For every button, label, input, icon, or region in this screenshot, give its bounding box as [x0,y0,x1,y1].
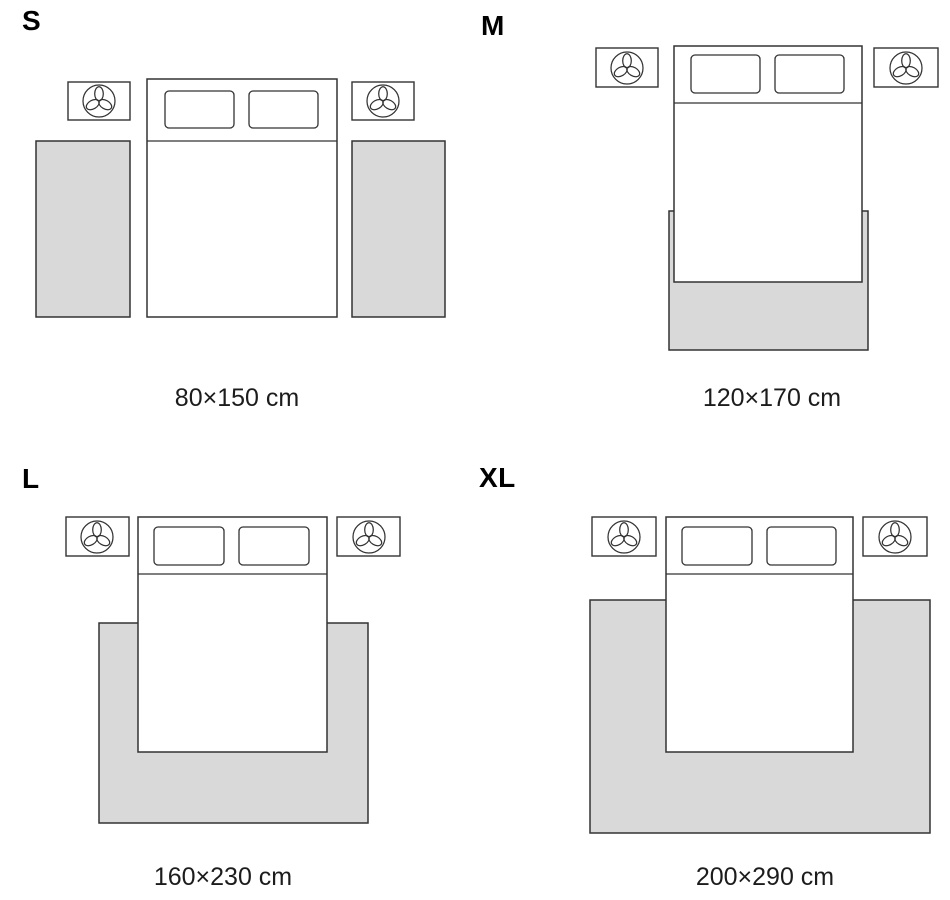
pillow-right [775,55,844,93]
dimension-label-m: 120×170 cm [622,384,922,413]
size-panel-m: M 120×170 cm [475,0,950,450]
pillow-right [239,527,309,565]
pillow-left [154,527,224,565]
dimension-label-s: 80×150 cm [87,384,387,413]
rug-right-runner [352,141,445,317]
pillow-left [165,91,234,128]
rug-left-runner [36,141,130,317]
pillow-right [767,527,836,565]
room-diagram-l [0,450,475,900]
room-diagram-xl [475,450,950,900]
size-panel-s: S 80×150 cm [0,0,475,450]
dimension-label-xl: 200×290 cm [615,863,915,892]
size-panel-xl: XL 200×290 cm [475,450,950,900]
size-panel-l: L 160×230 cm [0,450,475,900]
pillow-left [682,527,752,565]
room-diagram-s [0,0,475,450]
pillow-right [249,91,318,128]
room-diagram-m [475,0,950,450]
rug-size-guide: S 80×150 cm M 120×170 cm [0,0,950,900]
pillow-left [691,55,760,93]
dimension-label-l: 160×230 cm [73,863,373,892]
